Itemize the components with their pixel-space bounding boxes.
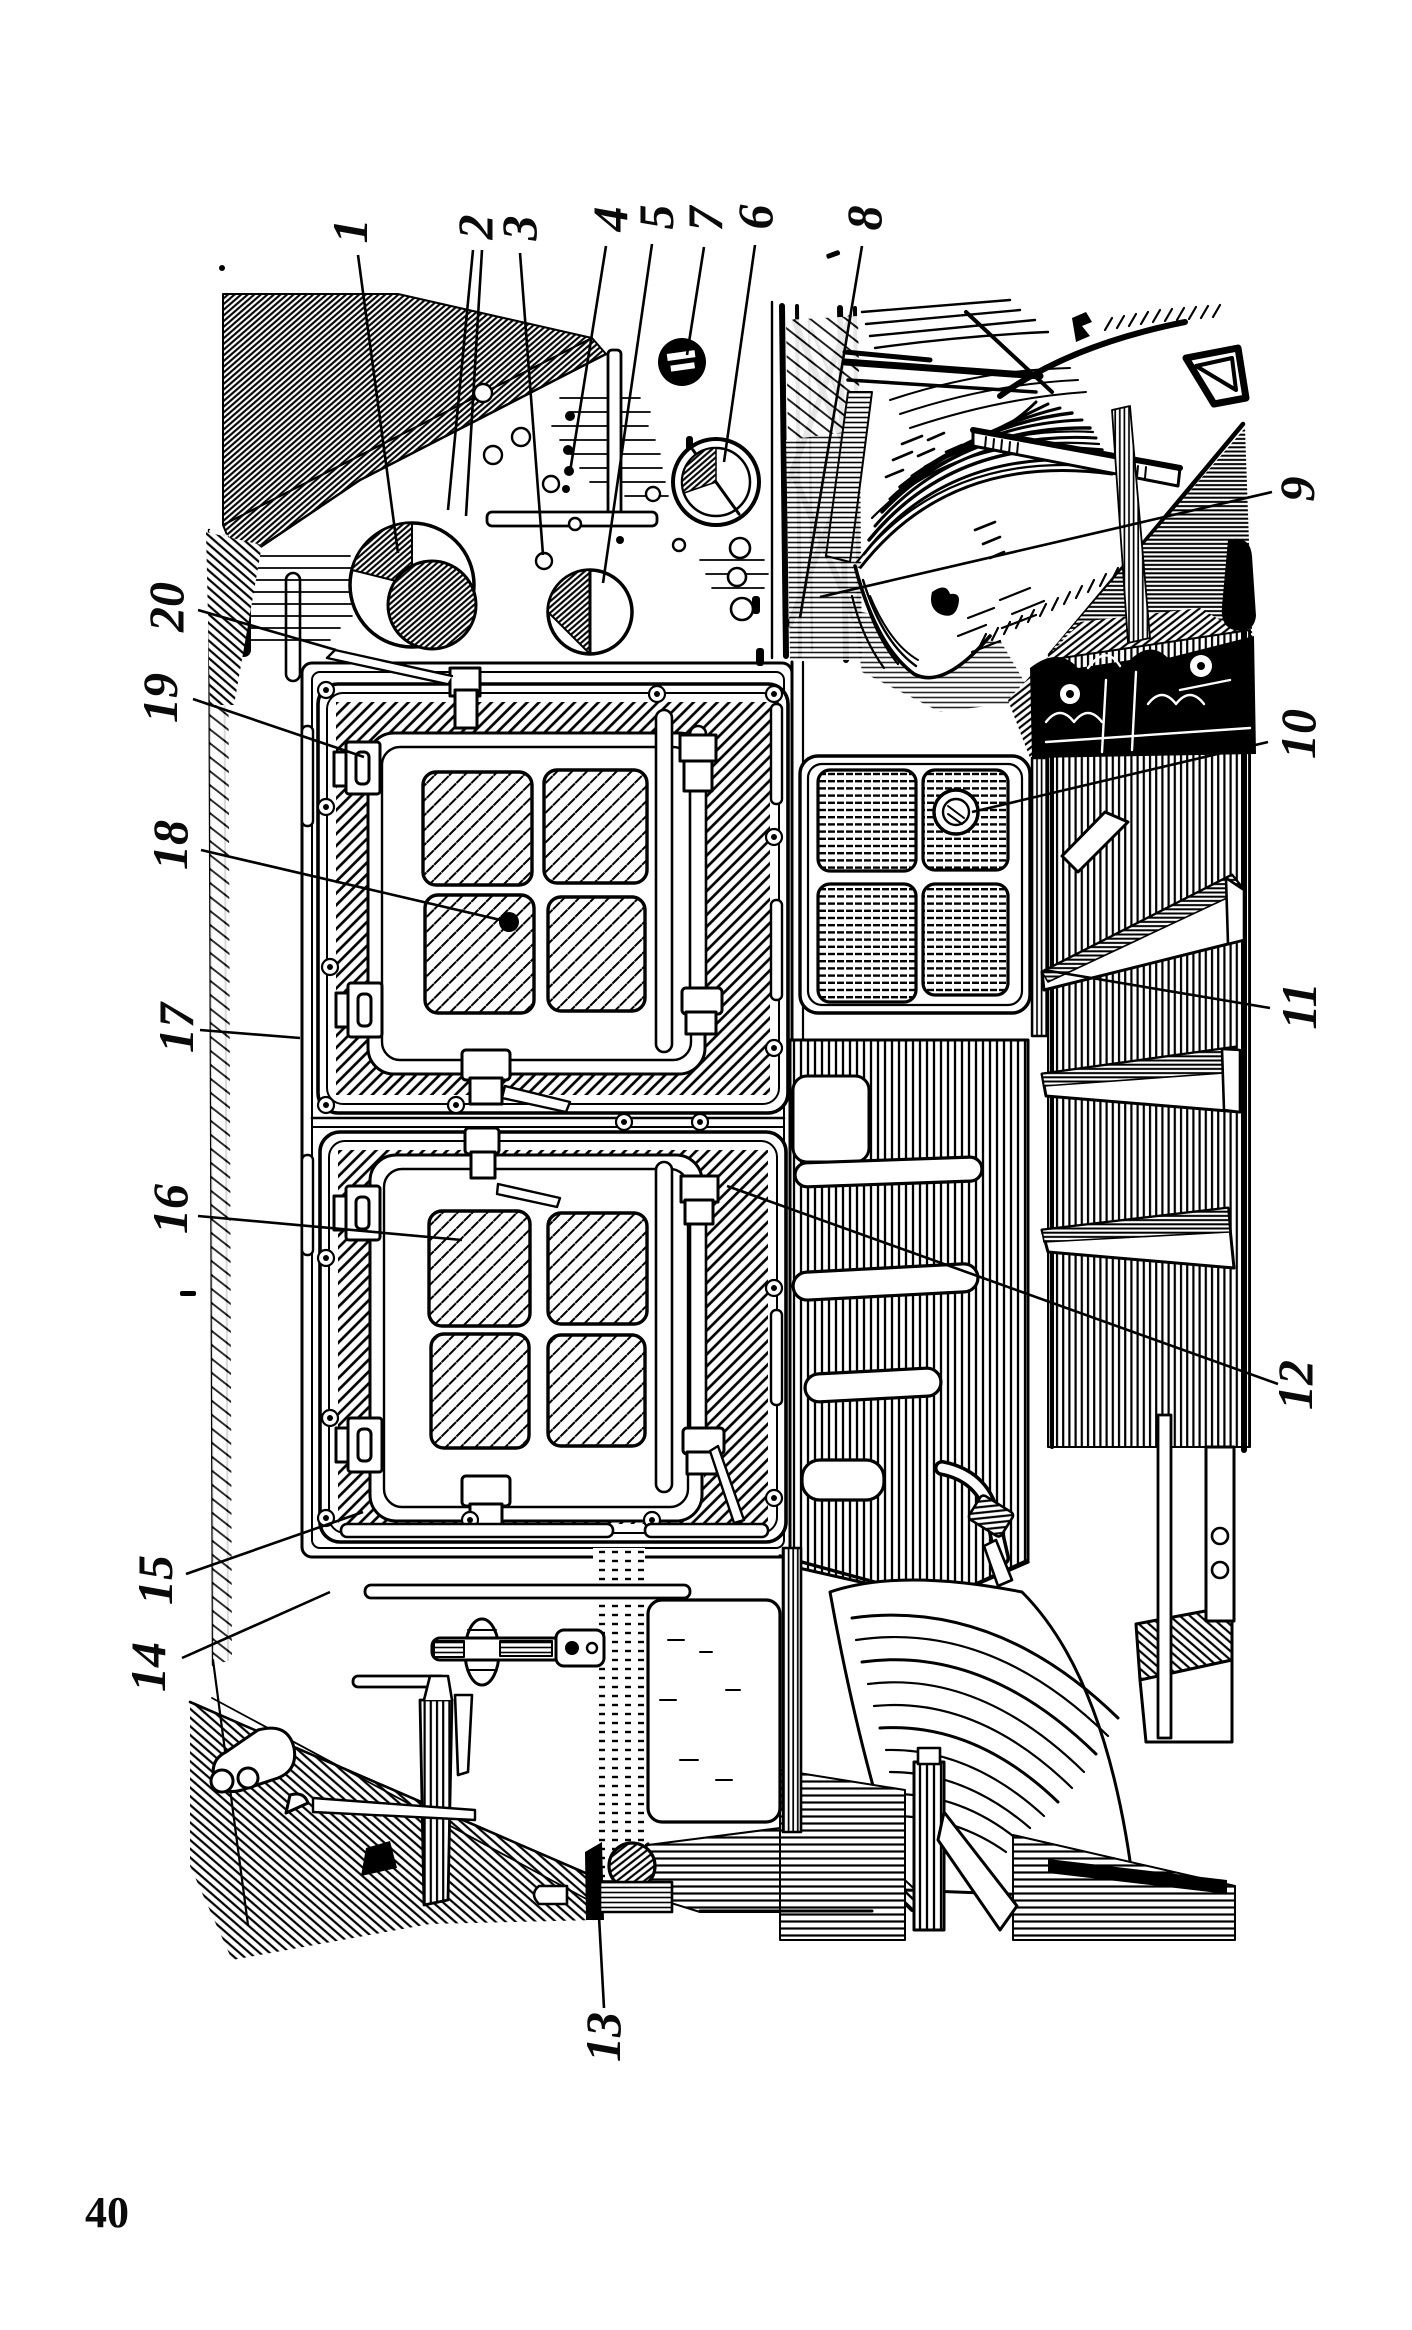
svg-text:9: 9 [1269, 477, 1325, 502]
svg-text:19: 19 [132, 673, 188, 723]
svg-text:12: 12 [1267, 1360, 1323, 1410]
svg-text:20: 20 [138, 582, 194, 633]
svg-text:8: 8 [836, 206, 892, 231]
svg-text:11: 11 [1271, 982, 1327, 1029]
svg-text:13: 13 [575, 2012, 631, 2062]
svg-text:7: 7 [677, 205, 733, 232]
svg-text:18: 18 [142, 820, 198, 870]
svg-text:10: 10 [1270, 709, 1326, 759]
svg-text:5: 5 [628, 205, 684, 230]
svg-text:1: 1 [322, 219, 378, 244]
svg-text:17: 17 [148, 1001, 204, 1053]
svg-text:40: 40 [85, 2188, 129, 2237]
svg-text:3: 3 [491, 216, 547, 242]
svg-text:16: 16 [142, 1184, 198, 1234]
svg-text:15: 15 [127, 1555, 183, 1605]
svg-text:14: 14 [120, 1642, 176, 1692]
svg-text:6: 6 [727, 205, 783, 230]
